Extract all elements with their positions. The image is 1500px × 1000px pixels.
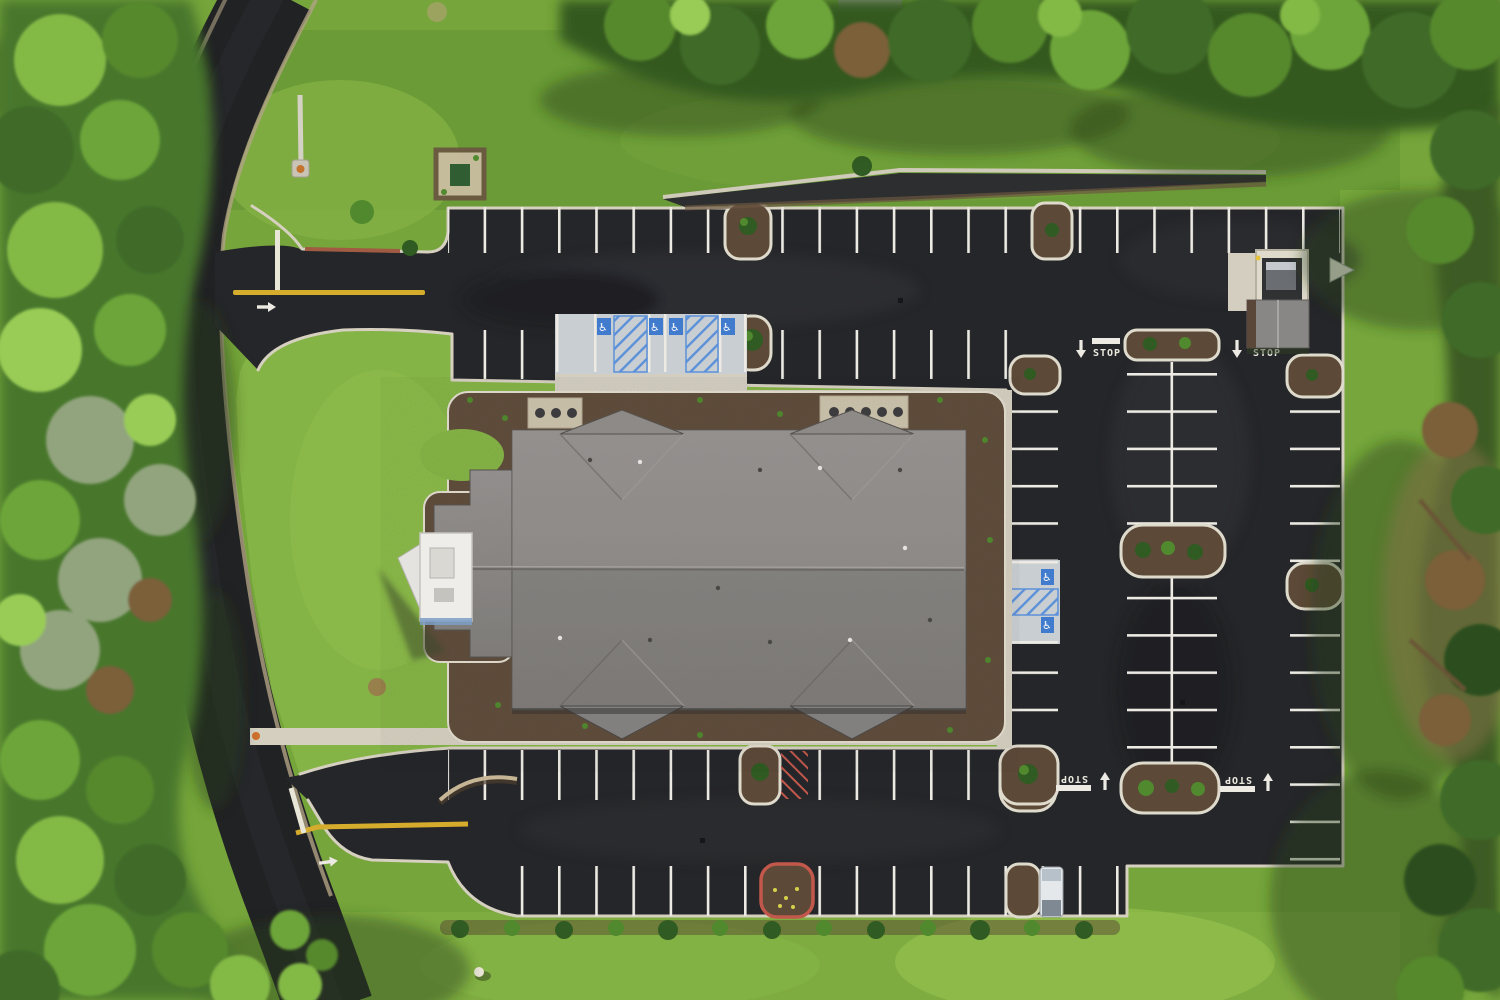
aerial-photo-scene: ♿ ♿ ♿ ♿ ♿ ♿ STOP STOP STOP STOP — [0, 0, 1500, 1000]
photo-grain-overlay — [0, 0, 1500, 1000]
aerial-photo: ♿ ♿ ♿ ♿ ♿ ♿ STOP STOP STOP STOP — [0, 0, 1500, 1000]
